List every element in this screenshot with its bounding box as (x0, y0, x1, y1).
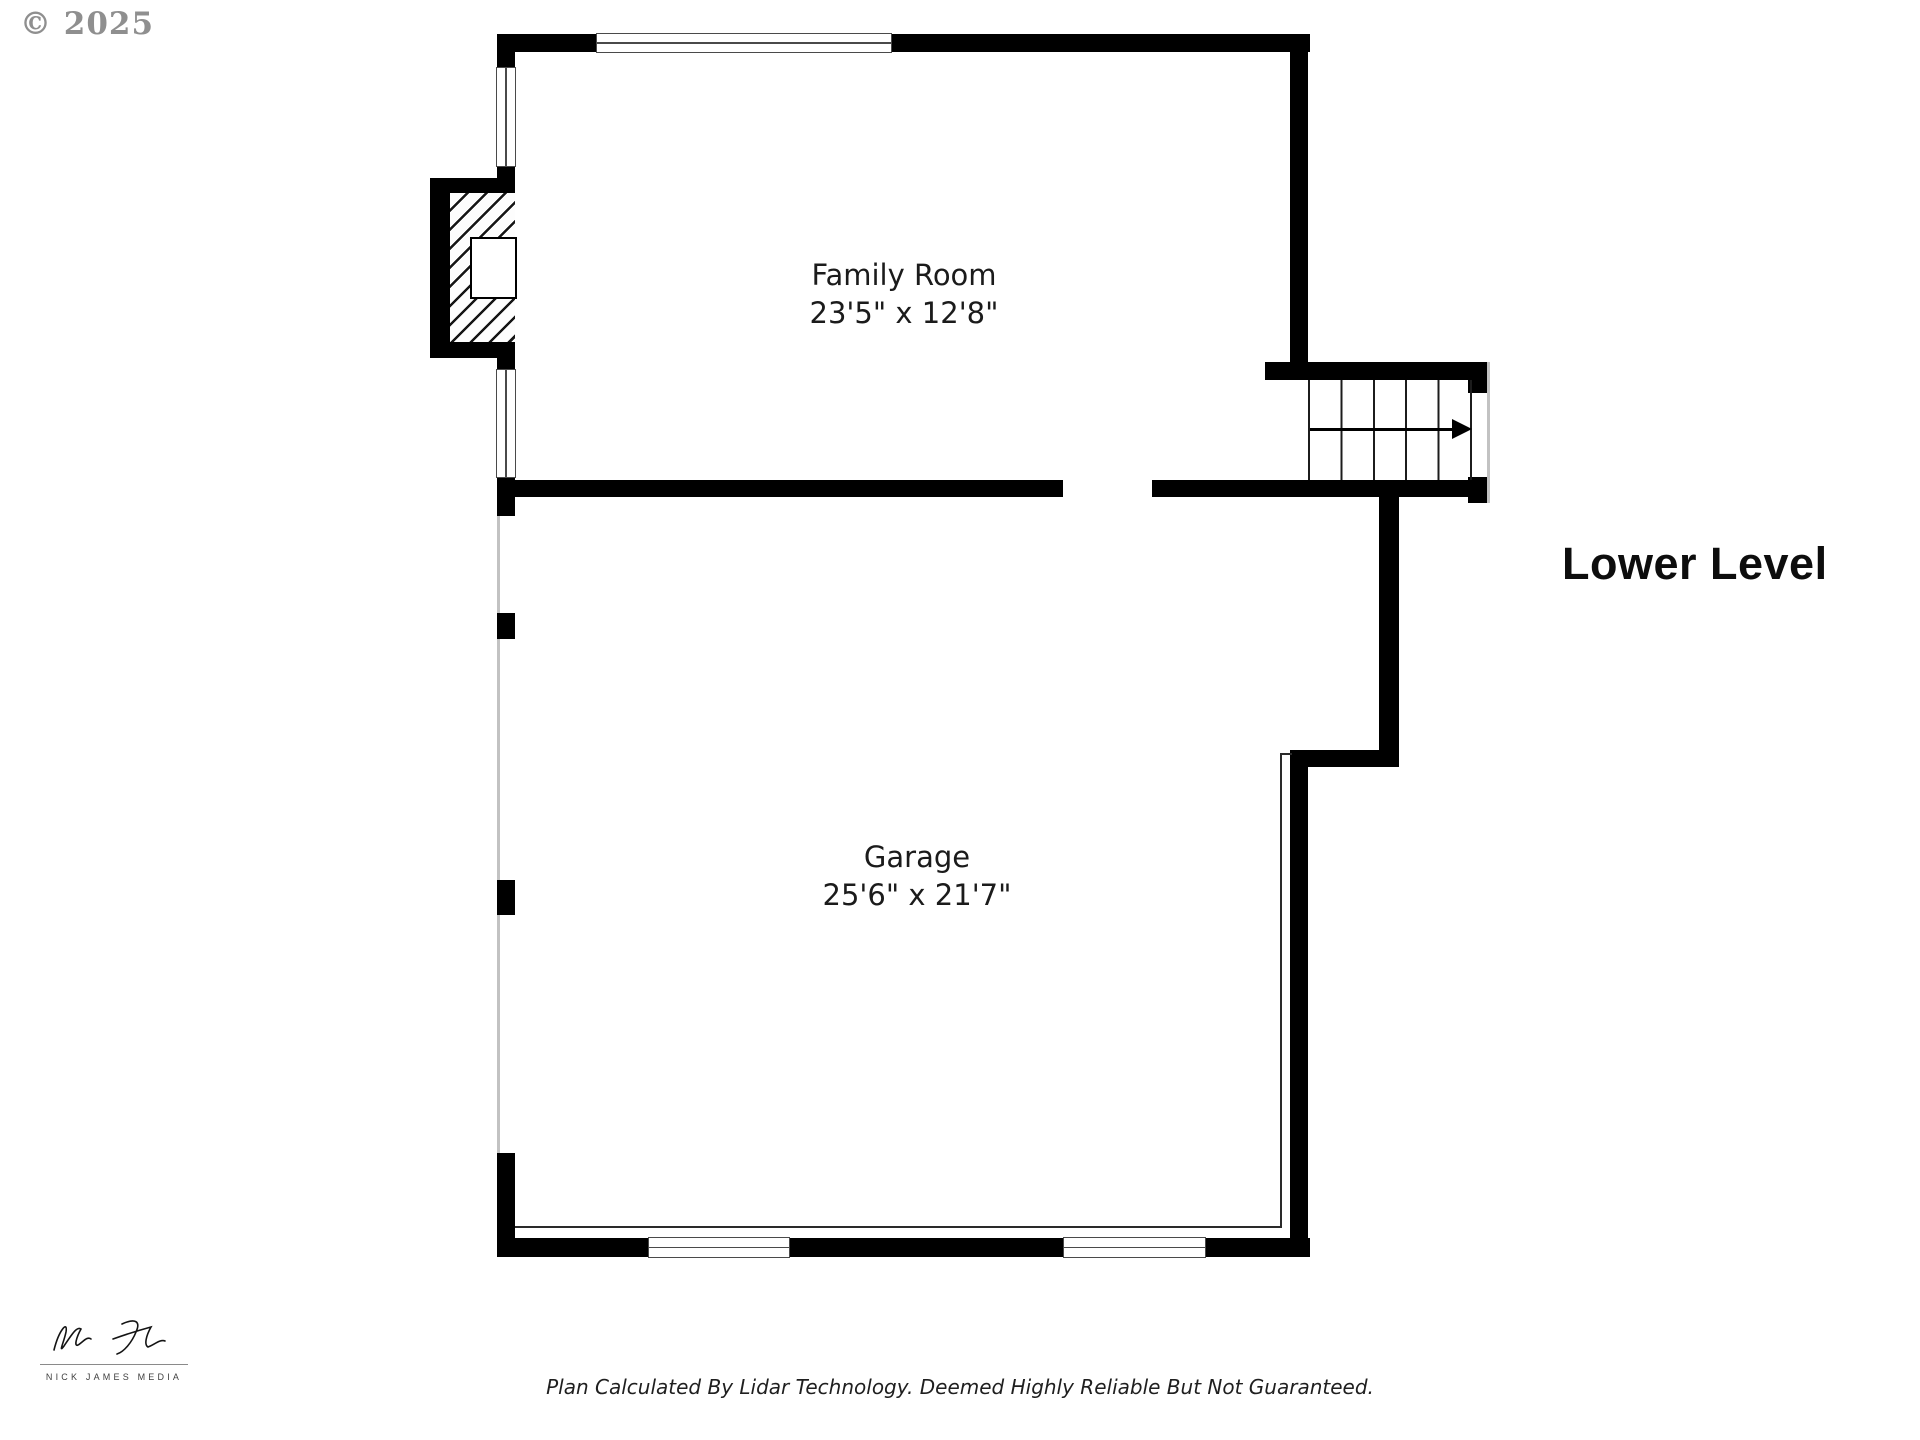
stair-north-wall (1265, 362, 1490, 380)
family-room-west-window-lower (496, 369, 516, 478)
divider-wall-east-segment (1152, 480, 1490, 497)
family-room-west-window-upper (496, 67, 516, 167)
garage-west-post-1 (497, 613, 515, 639)
garage-south-window-east (1063, 1237, 1206, 1258)
stair-direction-arrow (1310, 428, 1456, 431)
disclaimer-text: Plan Calculated By Lidar Technology. Dee… (0, 1375, 1920, 1399)
garage-dimensions: 25'6" x 21'7" (767, 876, 1067, 914)
fireplace (430, 178, 515, 358)
signature-scribble-icon (40, 1312, 190, 1358)
garage-interior-line-south (500, 1226, 1282, 1228)
stair-direction-arrow-head-icon (1452, 419, 1472, 439)
copyright-watermark: © 2025 (20, 6, 154, 42)
floor-plan-canvas: Family Room 23'5" x 12'8" Garage 25'6" x… (0, 0, 1920, 1440)
garage-label: Garage 25'6" x 21'7" (767, 838, 1067, 915)
signature-divider (40, 1364, 188, 1365)
family-room-west-wall-segment-1 (497, 34, 515, 67)
family-room-east-wall (1290, 34, 1308, 362)
family-room-label: Family Room 23'5" x 12'8" (754, 256, 1054, 333)
fireplace-firebox (470, 237, 517, 299)
garage-south-window-west (648, 1237, 790, 1258)
signature: NICK JAMES MEDIA (40, 1312, 195, 1382)
family-room-north-window (596, 33, 892, 53)
divider-wall-west-segment (497, 480, 1063, 497)
level-title: Lower Level (1562, 538, 1828, 590)
garage-west-opening-line (497, 516, 500, 1153)
garage-interior-line-east (1280, 753, 1282, 1228)
garage-west-post-2 (497, 880, 515, 915)
garage-east-wall-upper (1379, 497, 1399, 755)
stair-landing-edge-line (1487, 362, 1490, 503)
family-room-name: Family Room (754, 256, 1054, 294)
family-room-dimensions: 23'5" x 12'8" (754, 294, 1054, 332)
garage-interior-line-jog (1280, 753, 1292, 755)
garage-name: Garage (767, 838, 1067, 876)
garage-east-wall-lower (1290, 750, 1308, 1257)
